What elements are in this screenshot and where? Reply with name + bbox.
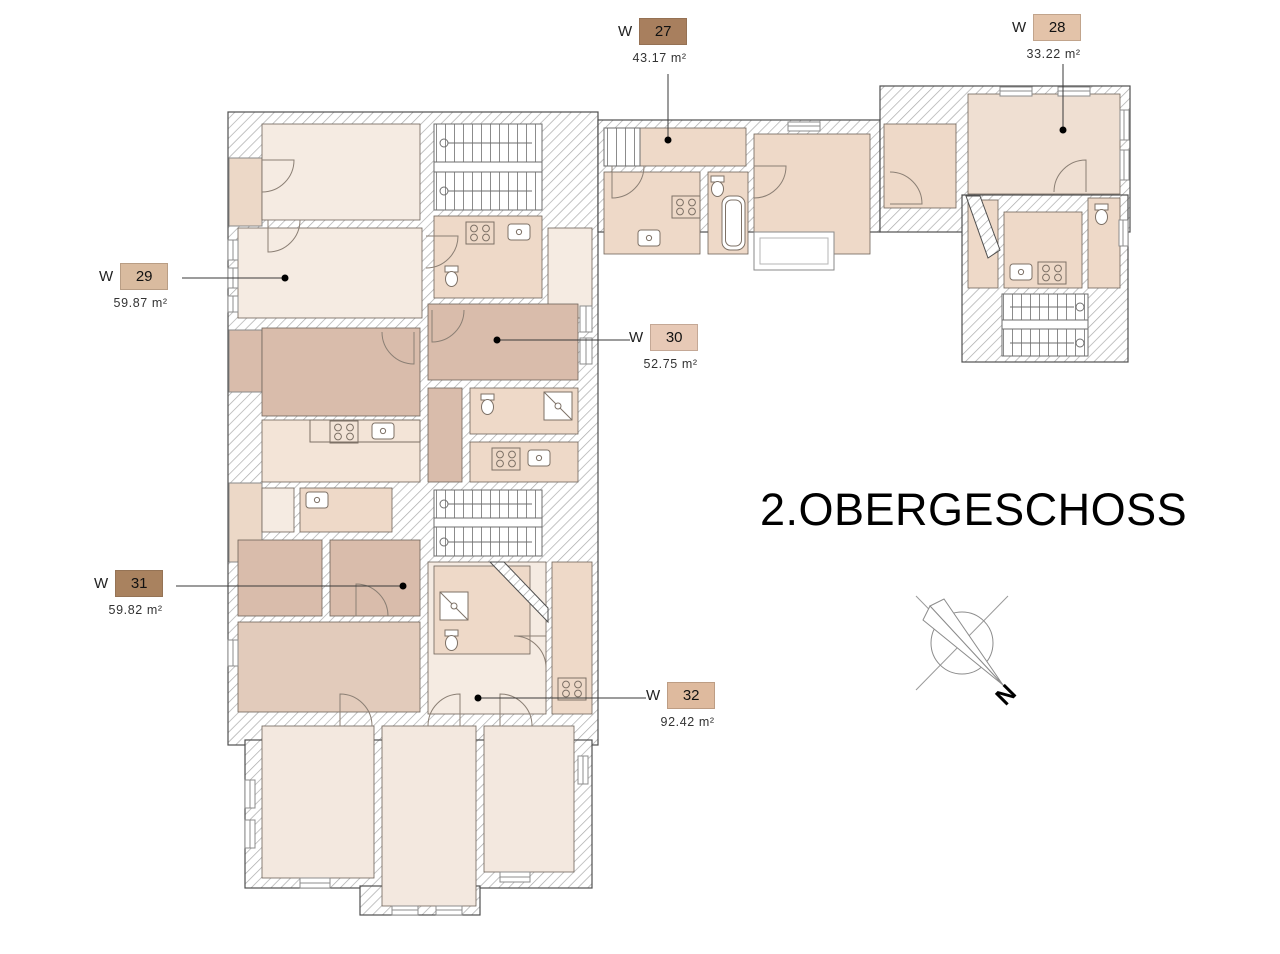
toilet-icon xyxy=(481,394,494,415)
shower-icon xyxy=(544,392,572,420)
unit-number-badge: 28 xyxy=(1033,14,1081,41)
sink-icon xyxy=(306,492,328,508)
floor-title: 2.OBERGESCHOSS xyxy=(760,484,1187,536)
room-w29-bedroom xyxy=(262,124,420,220)
staircase-middle xyxy=(434,490,542,556)
room-w32-bed2 xyxy=(382,726,476,906)
unit-number-badge: 29 xyxy=(120,263,168,290)
unit-area: 33.22 m² xyxy=(1012,47,1081,61)
unit-prefix: W xyxy=(618,23,632,40)
room-w29-living xyxy=(238,228,422,318)
room-w30-kitchen xyxy=(470,442,578,482)
unit-label-w30[interactable]: W30 52.75 m² xyxy=(629,324,698,371)
room-w32-bed3 xyxy=(484,726,574,872)
unit-area: 59.82 m² xyxy=(94,603,163,617)
bathtub-icon xyxy=(722,196,745,250)
toilet-icon xyxy=(711,176,724,197)
room-w31-room1 xyxy=(238,540,322,616)
sink-icon xyxy=(508,224,530,240)
sink-icon xyxy=(638,230,660,246)
unit-number-badge: 32 xyxy=(667,682,715,709)
unit-prefix: W xyxy=(99,268,113,285)
unit-label-w28[interactable]: W28 33.22 m² xyxy=(1012,14,1081,61)
toilet-icon xyxy=(1095,204,1108,225)
unit-label-w27[interactable]: W27 43.17 m² xyxy=(618,18,687,65)
sink-icon xyxy=(528,450,550,466)
shower-icon xyxy=(440,592,468,620)
compass: N xyxy=(916,596,1022,711)
unit-number-badge: 30 xyxy=(650,324,698,351)
toilet-icon xyxy=(445,630,458,651)
sink-icon xyxy=(372,423,394,439)
unit-number-badge: 31 xyxy=(115,570,163,597)
room-w30-living xyxy=(428,304,578,380)
room-w31-room2 xyxy=(330,540,420,616)
floorplan-page: { "title": "2.OBERGESCHOSS", "compass": … xyxy=(0,0,1280,954)
room-w29-room2 xyxy=(262,328,420,416)
unit-label-w29[interactable]: W29 59.87 m² xyxy=(99,263,168,310)
room-w28-living xyxy=(968,94,1120,194)
unit-label-w32[interactable]: W32 92.42 m² xyxy=(646,682,715,729)
unit-area: 43.17 m² xyxy=(618,51,687,65)
unit-number-badge: 27 xyxy=(639,18,687,45)
unit-prefix: W xyxy=(646,687,660,704)
unit-area: 92.42 m² xyxy=(646,715,715,729)
compass-needle xyxy=(923,606,1003,685)
mini-stair-w27 xyxy=(604,128,640,166)
staircase-right xyxy=(1002,294,1088,356)
room-vestibule xyxy=(884,124,956,208)
balconies-left xyxy=(229,158,262,562)
room-w32-bed1 xyxy=(262,726,374,878)
unit-area: 52.75 m² xyxy=(629,357,698,371)
staircase-top xyxy=(434,124,542,210)
sink-icon xyxy=(1010,264,1032,280)
unit-prefix: W xyxy=(629,329,643,346)
compass-north-label: N xyxy=(991,680,1022,711)
floorplan-drawing: N xyxy=(0,0,1280,954)
room-w30-corridor xyxy=(428,388,462,482)
unit-label-w31[interactable]: W31 59.82 m² xyxy=(94,570,163,617)
unit-prefix: W xyxy=(1012,19,1026,36)
balcony-top xyxy=(754,232,834,270)
room-w31-living xyxy=(238,622,420,712)
unit-area: 59.87 m² xyxy=(99,296,168,310)
unit-prefix: W xyxy=(94,575,108,592)
room-w31-hall xyxy=(262,488,294,532)
toilet-icon xyxy=(445,266,458,287)
